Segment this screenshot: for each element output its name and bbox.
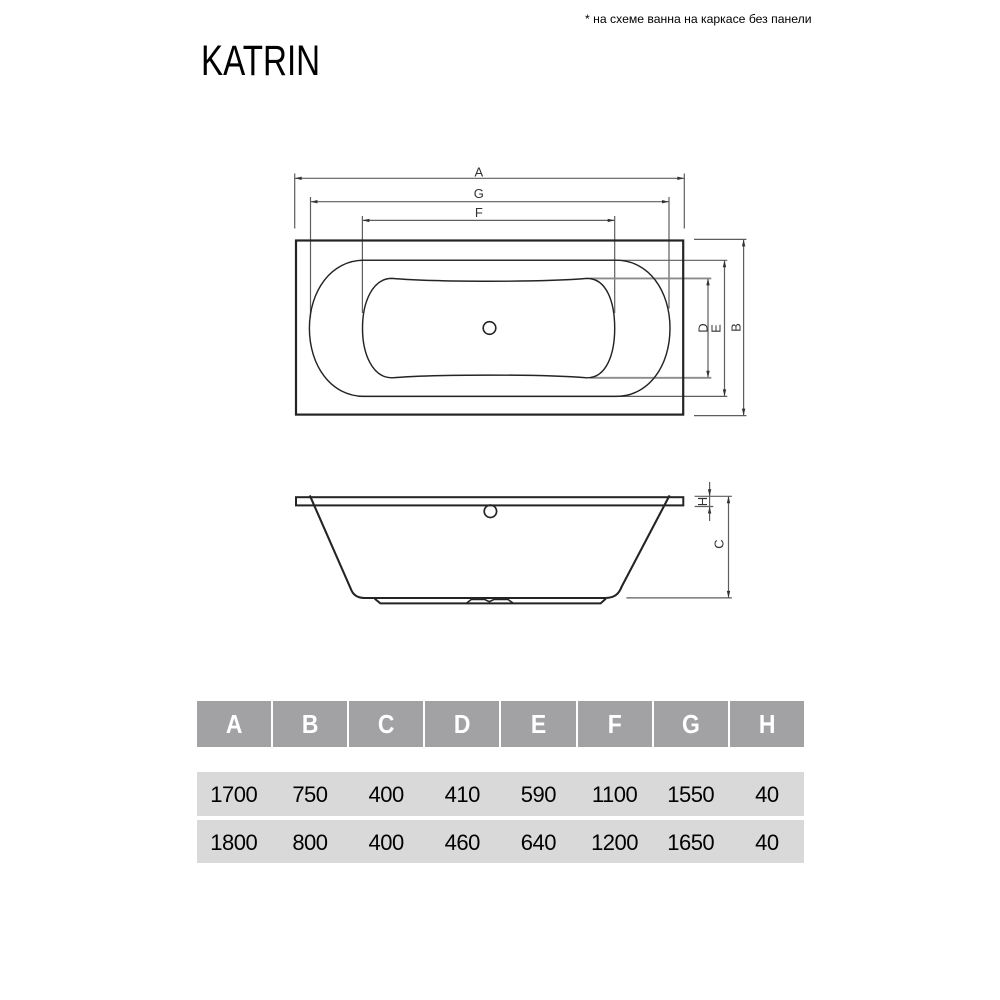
svg-text:A: A [474, 165, 483, 180]
svg-text:F: F [475, 205, 483, 220]
svg-text:B: B [729, 323, 744, 332]
svg-text:E: E [709, 324, 724, 333]
svg-text:G: G [474, 186, 484, 201]
svg-text:H: H [695, 497, 710, 506]
svg-text:C: C [711, 539, 726, 548]
